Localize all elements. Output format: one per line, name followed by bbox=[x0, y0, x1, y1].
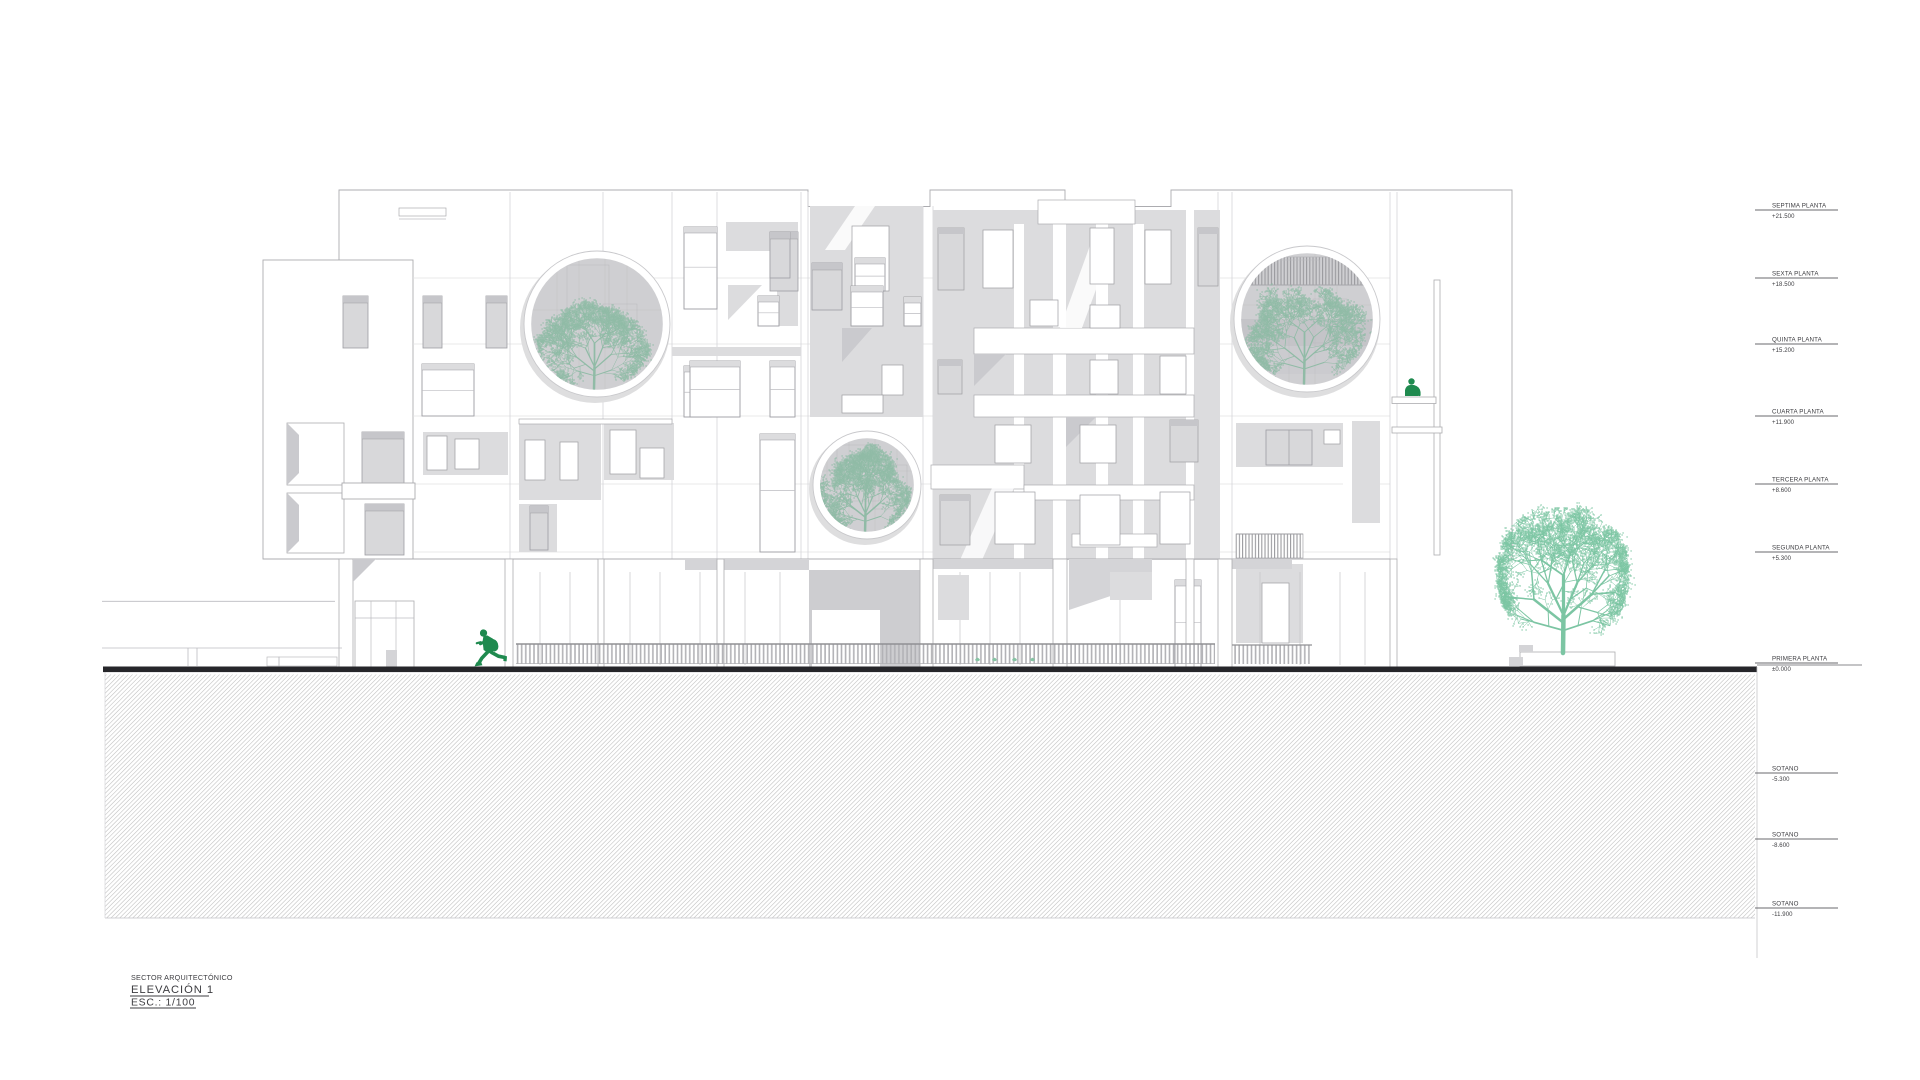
svg-text:+5.300: +5.300 bbox=[1772, 556, 1792, 562]
svg-text:SOTANO: SOTANO bbox=[1772, 766, 1799, 773]
svg-text:-8.600: -8.600 bbox=[1772, 843, 1790, 849]
svg-text:QUINTA PLANTA: QUINTA PLANTA bbox=[1772, 337, 1823, 344]
svg-text:+21.500: +21.500 bbox=[1772, 214, 1795, 220]
svg-text:-11.900: -11.900 bbox=[1772, 912, 1793, 918]
svg-text:+8.600: +8.600 bbox=[1772, 488, 1792, 494]
svg-text:PRIMERA PLANTA: PRIMERA PLANTA bbox=[1772, 656, 1828, 663]
svg-text:CUARTA PLANTA: CUARTA PLANTA bbox=[1772, 409, 1825, 416]
svg-text:±0.000: ±0.000 bbox=[1772, 667, 1791, 673]
svg-text:SEPTIMA PLANTA: SEPTIMA PLANTA bbox=[1772, 203, 1827, 210]
svg-text:+11.900: +11.900 bbox=[1772, 420, 1795, 426]
svg-text:SOTANO: SOTANO bbox=[1772, 832, 1799, 839]
svg-text:SEXTA PLANTA: SEXTA PLANTA bbox=[1772, 271, 1819, 278]
svg-text:SOTANO: SOTANO bbox=[1772, 901, 1799, 908]
svg-text:ESC.: 1/100: ESC.: 1/100 bbox=[131, 998, 195, 1009]
svg-text:+15.200: +15.200 bbox=[1772, 348, 1795, 354]
svg-text:TERCERA PLANTA: TERCERA PLANTA bbox=[1772, 477, 1829, 484]
svg-text:SECTOR ARQUITECTÓNICO: SECTOR ARQUITECTÓNICO bbox=[131, 973, 233, 982]
svg-text:-5.300: -5.300 bbox=[1772, 777, 1790, 783]
svg-text:ELEVACIÓN 1: ELEVACIÓN 1 bbox=[131, 983, 214, 996]
svg-text:SEGUNDA PLANTA: SEGUNDA PLANTA bbox=[1772, 545, 1830, 552]
svg-text:+18.500: +18.500 bbox=[1772, 282, 1795, 288]
